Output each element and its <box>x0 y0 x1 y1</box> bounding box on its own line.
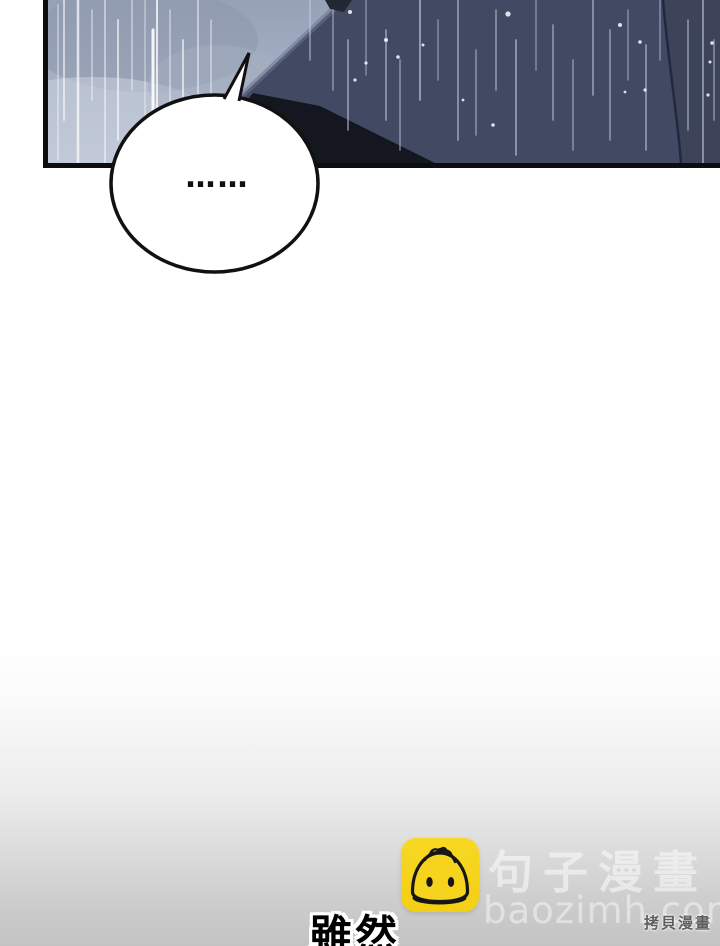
speech-bubble-text: …… <box>100 162 335 194</box>
caption-text: 雖然 <box>310 902 400 946</box>
speech-bubble: …… <box>100 38 335 288</box>
comic-page: …… 句子漫畫 baozimh.com 拷貝漫畫 雖然 <box>0 0 720 946</box>
baozi-bun-icon <box>401 838 479 912</box>
source-label: 拷貝漫畫 <box>644 912 712 933</box>
